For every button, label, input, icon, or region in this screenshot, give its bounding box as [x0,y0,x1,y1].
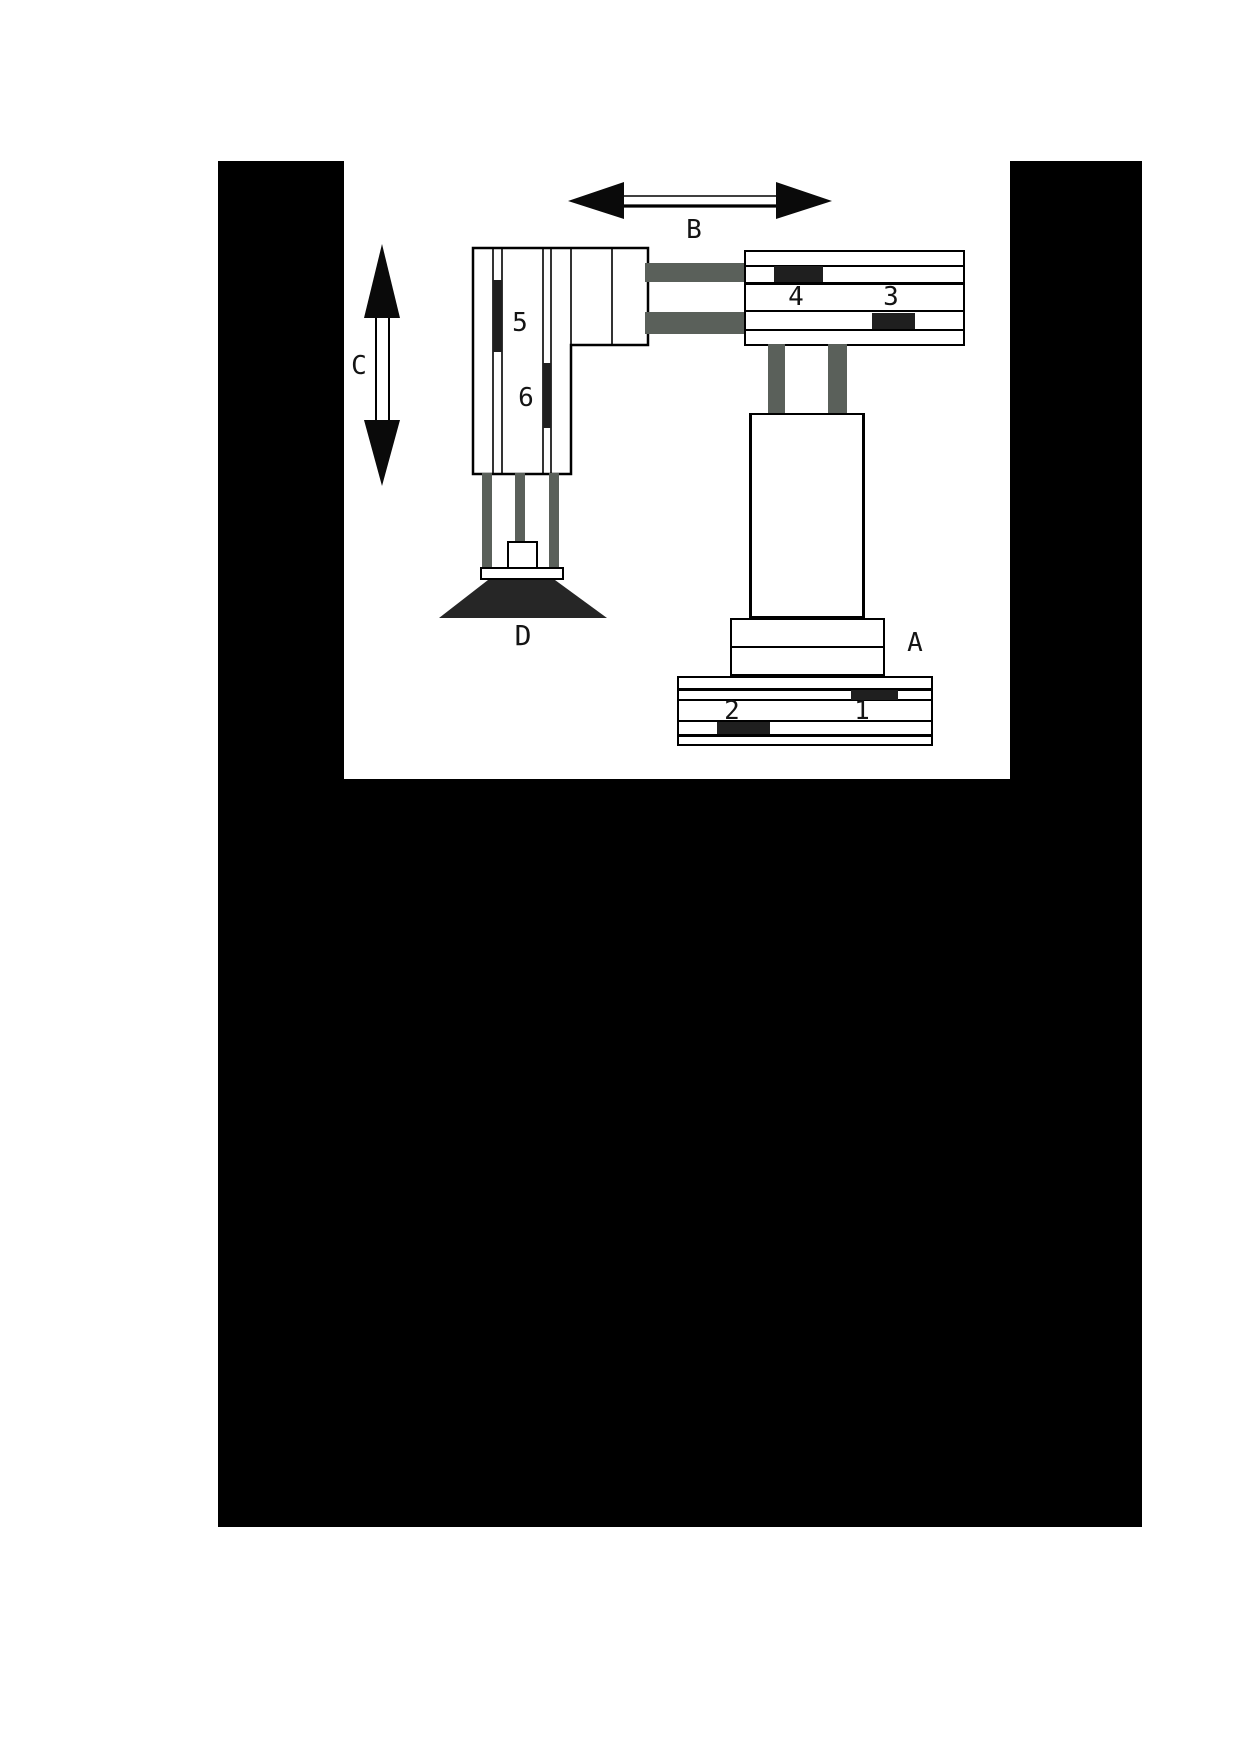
pedestal [730,618,885,676]
scanned-page: B C 5 6 [0,0,1240,1754]
label-sensor-3: 3 [876,284,906,310]
main-column [749,413,865,618]
redaction-bottom-block [344,779,1010,1527]
carriage-rule-3 [746,310,963,312]
slide-rail-lower [645,312,746,334]
label-base-a: A [900,630,930,656]
label-sensor-5: 5 [505,310,535,336]
redaction-right-bar [1010,161,1142,1527]
column-rod-right [828,344,847,413]
gripper-rod-right [549,473,559,569]
base-plate [677,676,933,746]
carriage-rule-4 [746,329,963,331]
label-arrow-c: C [344,353,374,379]
sensor-slider-6 [543,363,551,428]
sensor-marker-3 [872,313,915,329]
label-sensor-2: 2 [717,698,747,724]
label-sensor-6: 6 [511,385,541,411]
vertical-arm-assembly [471,246,651,476]
gripper-rod-middle [515,473,525,545]
pedestal-rule [732,646,883,648]
slide-rail-upper [645,263,746,282]
column-rod-left [768,344,785,413]
suction-cup-icon [438,579,608,619]
label-sensor-1: 1 [847,698,877,724]
gripper-rod-left [482,473,492,569]
label-gripper-d: D [508,623,538,649]
horizontal-arm-carriage [744,250,965,346]
sensor-slider-5 [493,280,502,352]
gripper-rod-end-block [507,541,538,569]
label-arrow-b: B [679,217,709,243]
base-rule-4 [679,734,931,737]
label-sensor-4: 4 [781,284,811,310]
sensor-marker-4 [774,266,823,282]
carriage-rule-2 [746,282,963,285]
redaction-left-bar [218,161,344,1527]
